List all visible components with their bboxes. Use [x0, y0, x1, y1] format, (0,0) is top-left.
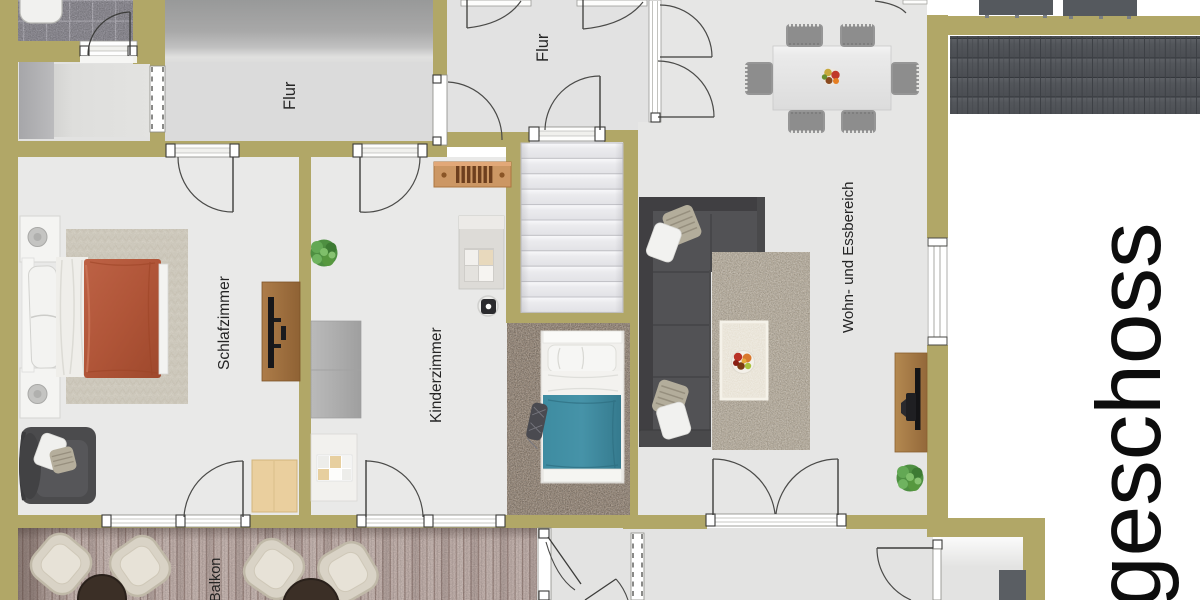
svg-text:Schlafzimmer: Schlafzimmer [216, 276, 233, 370]
svg-text:Balkon: Balkon [208, 558, 224, 600]
svg-text:geschoss: geschoss [1079, 223, 1180, 600]
svg-text:Flur: Flur [281, 81, 299, 110]
svg-text:Flur: Flur [534, 33, 552, 62]
svg-text:Kinderzimmer: Kinderzimmer [428, 327, 445, 423]
svg-text:Wohn- und Essbereich: Wohn- und Essbereich [840, 182, 857, 333]
